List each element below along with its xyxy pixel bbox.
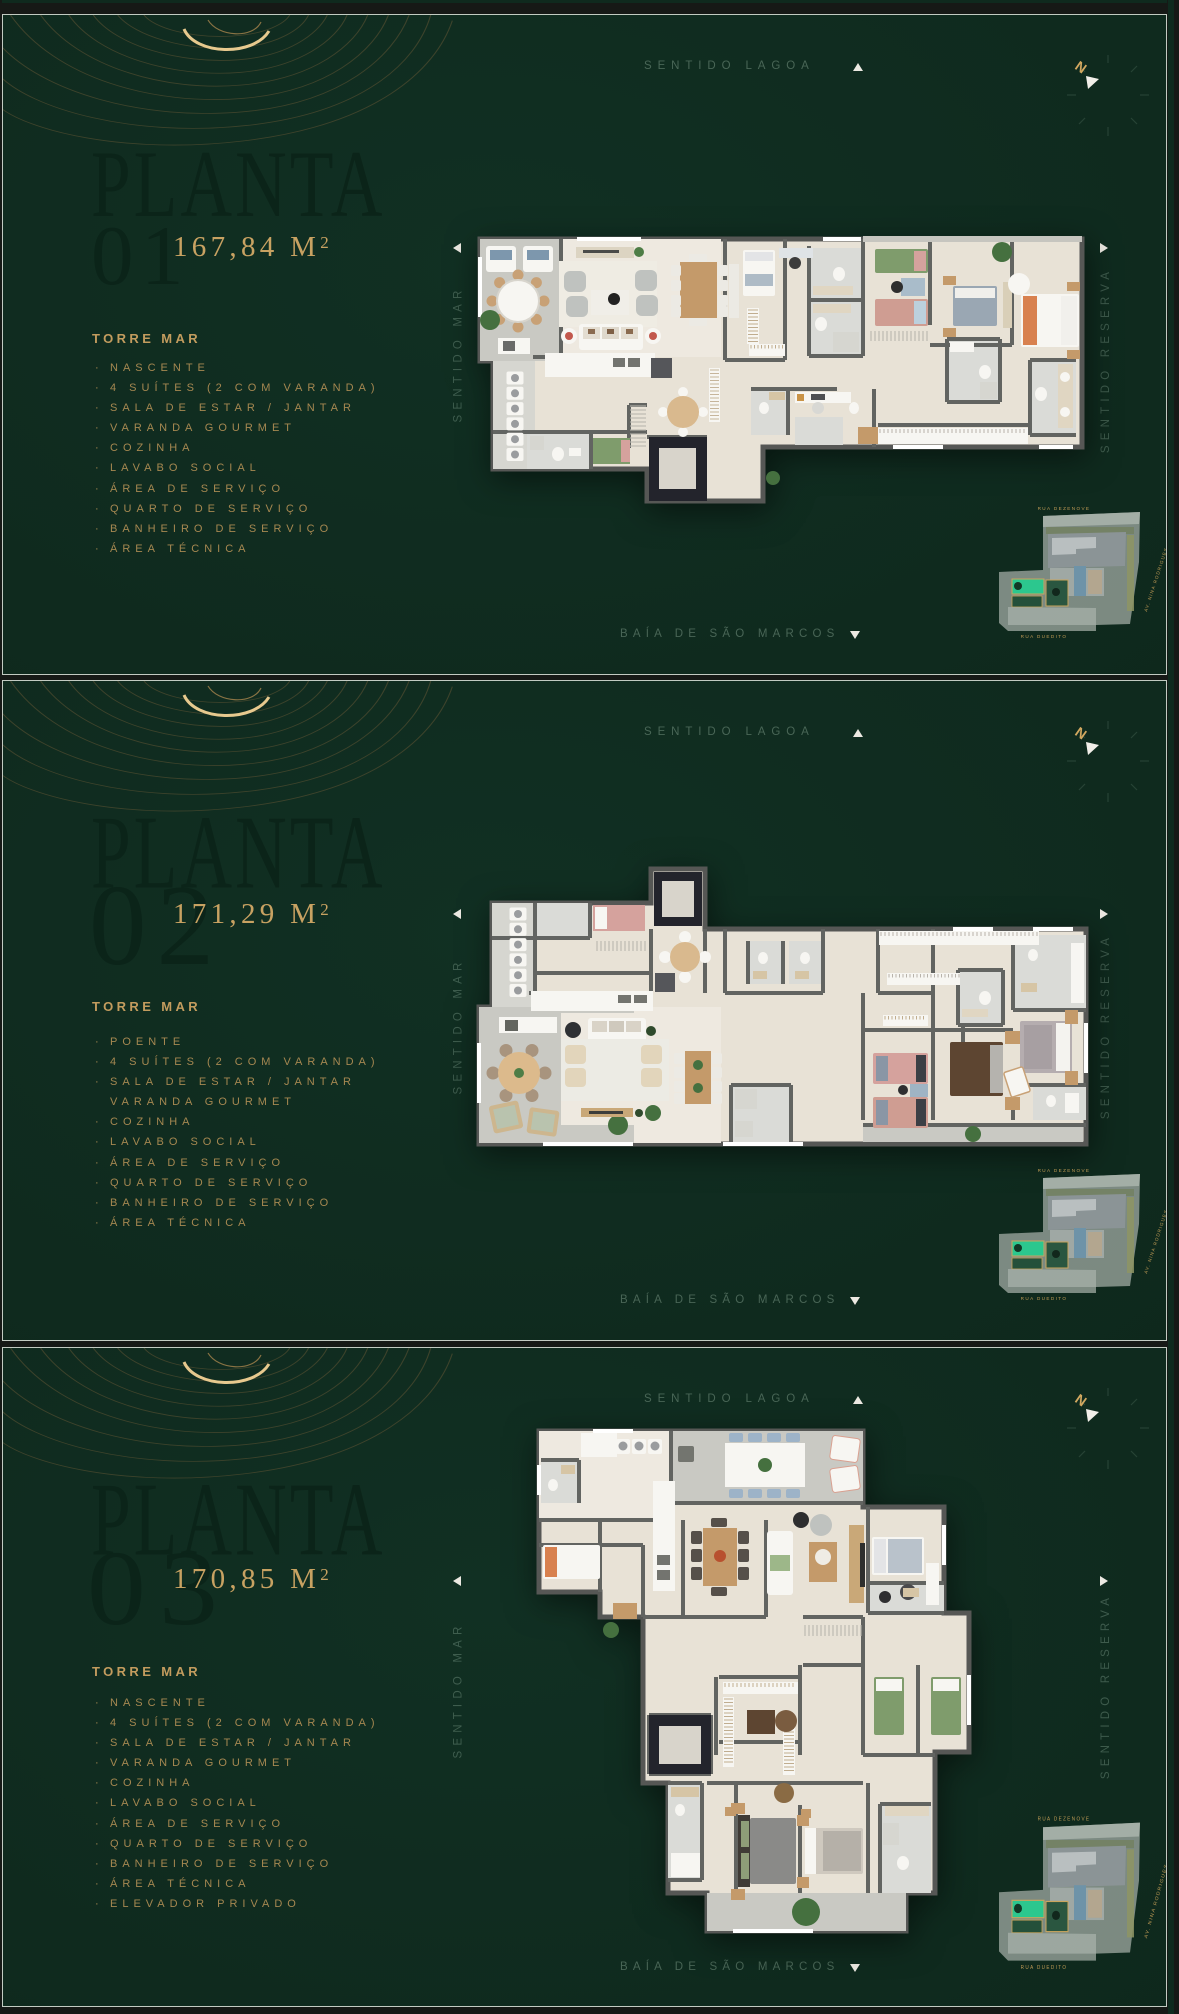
svg-text:N: N	[1072, 58, 1089, 77]
svg-text:RUA DEZENOVE: RUA DEZENOVE	[1038, 1168, 1091, 1173]
svg-text:N: N	[1072, 1391, 1089, 1410]
svg-text:AV. NINA RODRIGUES: AV. NINA RODRIGUES	[1143, 547, 1167, 613]
svg-text:RUA DUEDITO: RUA DUEDITO	[1021, 1296, 1068, 1301]
svg-text:RUA DEZENOVE: RUA DEZENOVE	[1038, 506, 1091, 511]
svg-text:AV. NINA RODRIGUES: AV. NINA RODRIGUES	[1143, 1209, 1167, 1275]
svg-text:N: N	[1072, 724, 1089, 743]
svg-text:AV. NINA RODRIGUES: AV. NINA RODRIGUES	[1143, 1863, 1167, 1939]
svg-text:RUA DEZENOVE: RUA DEZENOVE	[1038, 1816, 1091, 1822]
svg-text:RUA DUEDITO: RUA DUEDITO	[1021, 1964, 1068, 1970]
svg-text:RUA DUEDITO: RUA DUEDITO	[1021, 634, 1068, 639]
